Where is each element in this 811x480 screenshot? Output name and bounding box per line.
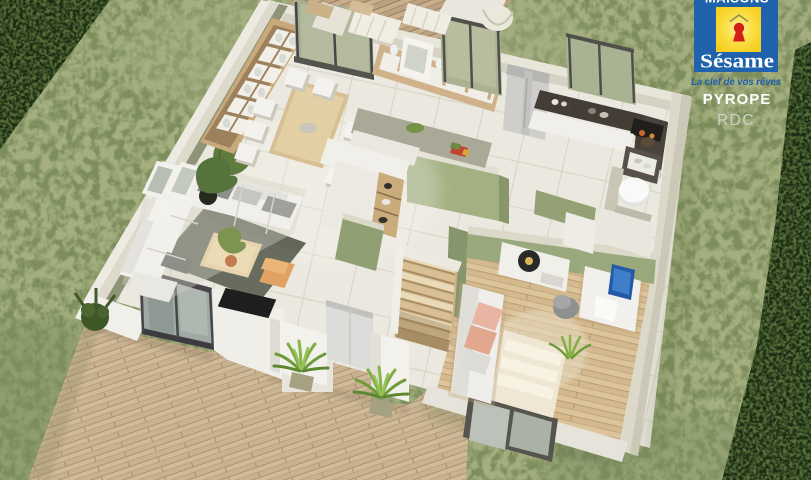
svg-text:PYROPE: PYROPE: [703, 91, 772, 108]
svg-text:RDC: RDC: [717, 112, 755, 129]
svg-text:MAISONS: MAISONS: [705, 0, 769, 6]
svg-text:Sésame: Sésame: [700, 51, 774, 73]
svg-text:La clef de vos rêves: La clef de vos rêves: [691, 76, 781, 88]
